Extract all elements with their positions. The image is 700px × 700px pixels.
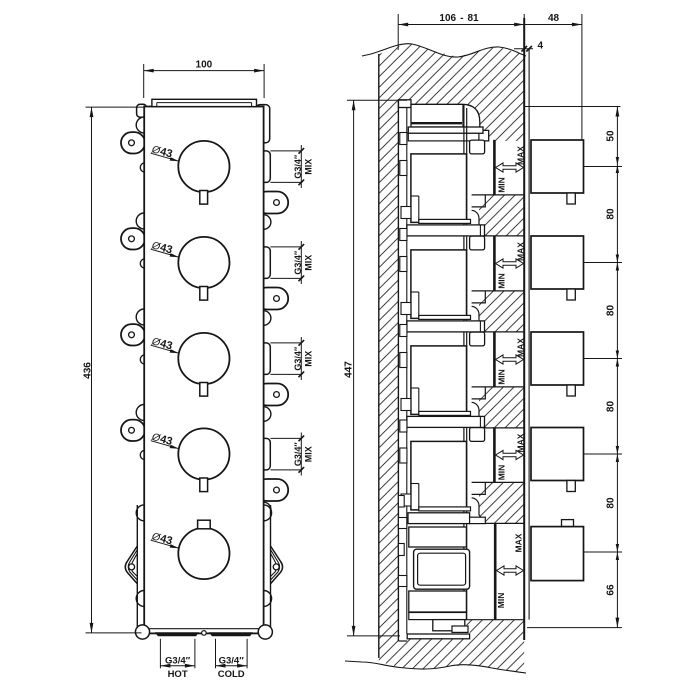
svg-text:100: 100: [196, 59, 213, 70]
svg-text:MIN: MIN: [496, 273, 506, 289]
svg-text:G3/4″: G3/4″: [293, 442, 303, 467]
svg-text:MAX: MAX: [514, 533, 524, 552]
svg-text:G3/4″: G3/4″: [165, 655, 191, 666]
svg-text:66: 66: [606, 584, 617, 596]
svg-text:4: 4: [538, 41, 544, 52]
svg-text:80: 80: [606, 208, 617, 220]
svg-text:80: 80: [606, 497, 617, 509]
svg-text:G3/4″: G3/4″: [219, 655, 245, 666]
svg-text:MIX: MIX: [303, 159, 313, 175]
svg-text:MIX: MIX: [303, 446, 313, 462]
svg-text:HOT: HOT: [168, 669, 188, 680]
svg-text:50: 50: [606, 130, 617, 142]
svg-text:MIN: MIN: [496, 465, 506, 481]
svg-text:MIX: MIX: [303, 255, 313, 271]
svg-text:G3/4″: G3/4″: [293, 250, 303, 275]
svg-text:80: 80: [606, 305, 617, 317]
svg-text:MIN: MIN: [496, 369, 506, 385]
svg-text:MIX: MIX: [303, 351, 313, 367]
svg-text:436: 436: [82, 362, 93, 379]
svg-text:MIN: MIN: [496, 593, 506, 609]
svg-text:G3/4″: G3/4″: [293, 346, 303, 371]
svg-text:G3/4″: G3/4″: [293, 154, 303, 179]
svg-text:447: 447: [343, 361, 354, 378]
svg-text:COLD: COLD: [218, 669, 245, 680]
svg-text:80: 80: [606, 401, 617, 413]
svg-text:106 - 81: 106 - 81: [439, 13, 479, 24]
svg-text:MIN: MIN: [496, 177, 506, 193]
svg-text:48: 48: [548, 13, 560, 24]
